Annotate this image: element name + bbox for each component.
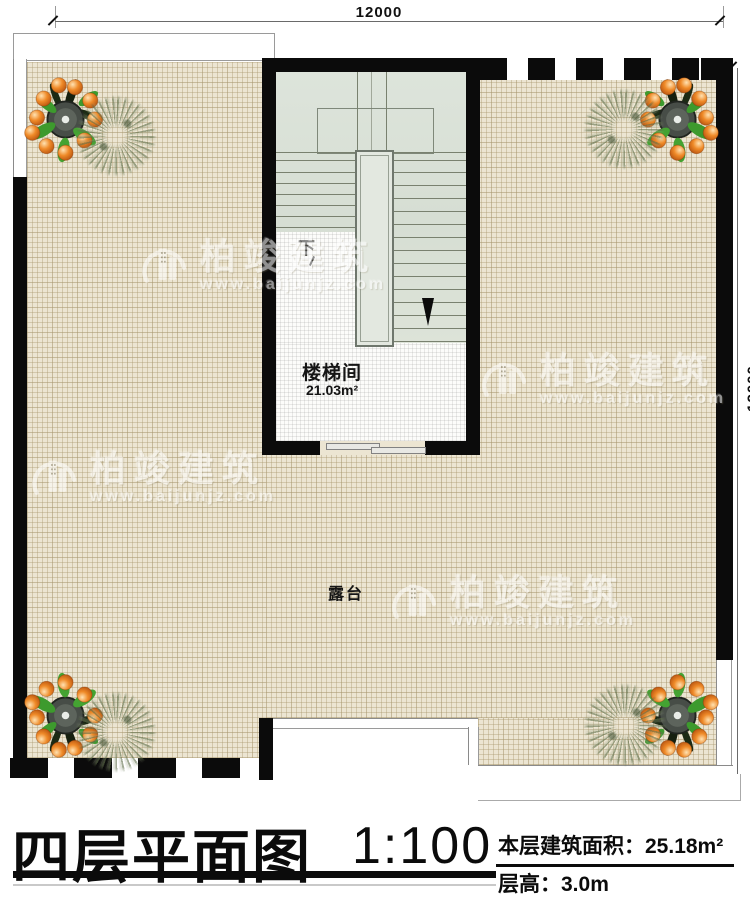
stairwell-name-label: 楼梯间 [302, 358, 362, 385]
terrace-name-label: 露台 [328, 580, 364, 604]
grass-plant-icon [580, 85, 668, 173]
floor-area-label: 本层建筑面积： [498, 835, 645, 858]
stair-line [371, 72, 372, 150]
floor-area-row: 本层建筑面积：25.18m² [498, 830, 723, 860]
stair-shaft-inner [360, 155, 389, 342]
stairwell-area-label: 21.03m² [306, 382, 358, 398]
grass-plant-icon [72, 92, 160, 180]
grass-plant-icon [72, 688, 160, 776]
drawing-title: 四层平面图 [12, 810, 312, 894]
stair-tread [390, 237, 466, 238]
floor-plan-sheet: 12000 12000 [0, 0, 750, 901]
stair-tread [390, 185, 466, 186]
stair-tread [390, 211, 466, 212]
stairwell-interior: 下 楼梯间 21.03m² [276, 72, 466, 441]
stair-line [386, 72, 387, 150]
title-underline-thin [13, 884, 496, 886]
stair-tread [276, 216, 355, 217]
wall-step-bottom [259, 718, 273, 780]
stair-tread [390, 250, 466, 251]
stair-tread [276, 194, 355, 195]
floor-height-row: 层高：3.0m [498, 868, 609, 898]
dim-line-top [55, 21, 723, 22]
stair-landing-outline [317, 108, 434, 154]
stair-tread [390, 328, 466, 329]
stair-tread [390, 341, 466, 342]
stair-tread [390, 263, 466, 264]
stair-tread [276, 205, 355, 206]
dim-label-right: 12000 [745, 349, 750, 429]
stair-tread [276, 227, 355, 228]
title-block-separator [496, 864, 734, 867]
stair-tread [276, 172, 355, 173]
stair-tread [390, 198, 466, 199]
floor-height-label: 层高： [498, 873, 561, 896]
grass-plant-icon [580, 680, 670, 770]
drawing-scale: 1:100 [352, 816, 492, 876]
dim-label-top: 12000 [339, 4, 419, 21]
stair-direction-arrow-icon [422, 298, 434, 326]
title-underline [13, 871, 496, 878]
stair-tread [390, 276, 466, 277]
stairwell-floor [276, 232, 355, 343]
railing-band-top-left [13, 33, 275, 61]
stair-tread [390, 224, 466, 225]
stair-tread [390, 289, 466, 290]
floor-area-value: 25.18m² [645, 835, 723, 858]
sliding-door-leaf [371, 447, 426, 454]
railing-bottom-middle [266, 718, 478, 729]
railing-step-connector [468, 727, 479, 765]
stair-shaft [355, 150, 394, 347]
stair-line [357, 72, 358, 150]
lower-roof-edge [478, 774, 741, 801]
floor-height-value: 3.0m [561, 873, 609, 896]
dim-line-right [737, 68, 738, 788]
stair-tread [276, 183, 355, 184]
stair-tread [390, 172, 466, 173]
